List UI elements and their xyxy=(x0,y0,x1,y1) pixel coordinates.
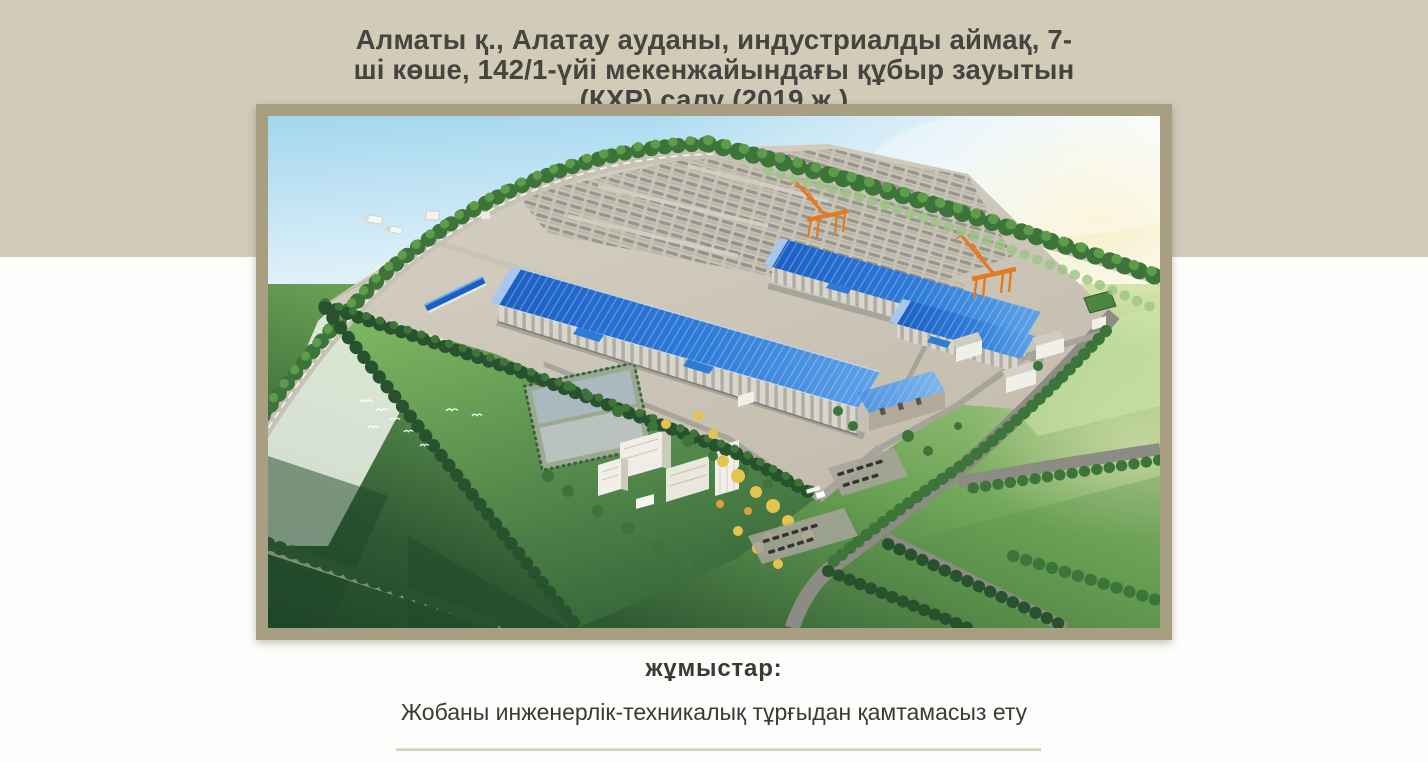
gatehouse-west xyxy=(426,211,439,220)
factory-rendering xyxy=(268,116,1160,628)
works-description: Жобаны инженерлік-техникалық тұрғыдан қа… xyxy=(0,699,1428,726)
works-label: жұмыстар: xyxy=(0,655,1428,683)
factory-image-frame xyxy=(256,104,1172,640)
pad-shed xyxy=(481,212,490,219)
section-divider xyxy=(396,748,1041,751)
page-title: Алматы қ., Алатау ауданы, индустриалды а… xyxy=(224,25,1204,115)
